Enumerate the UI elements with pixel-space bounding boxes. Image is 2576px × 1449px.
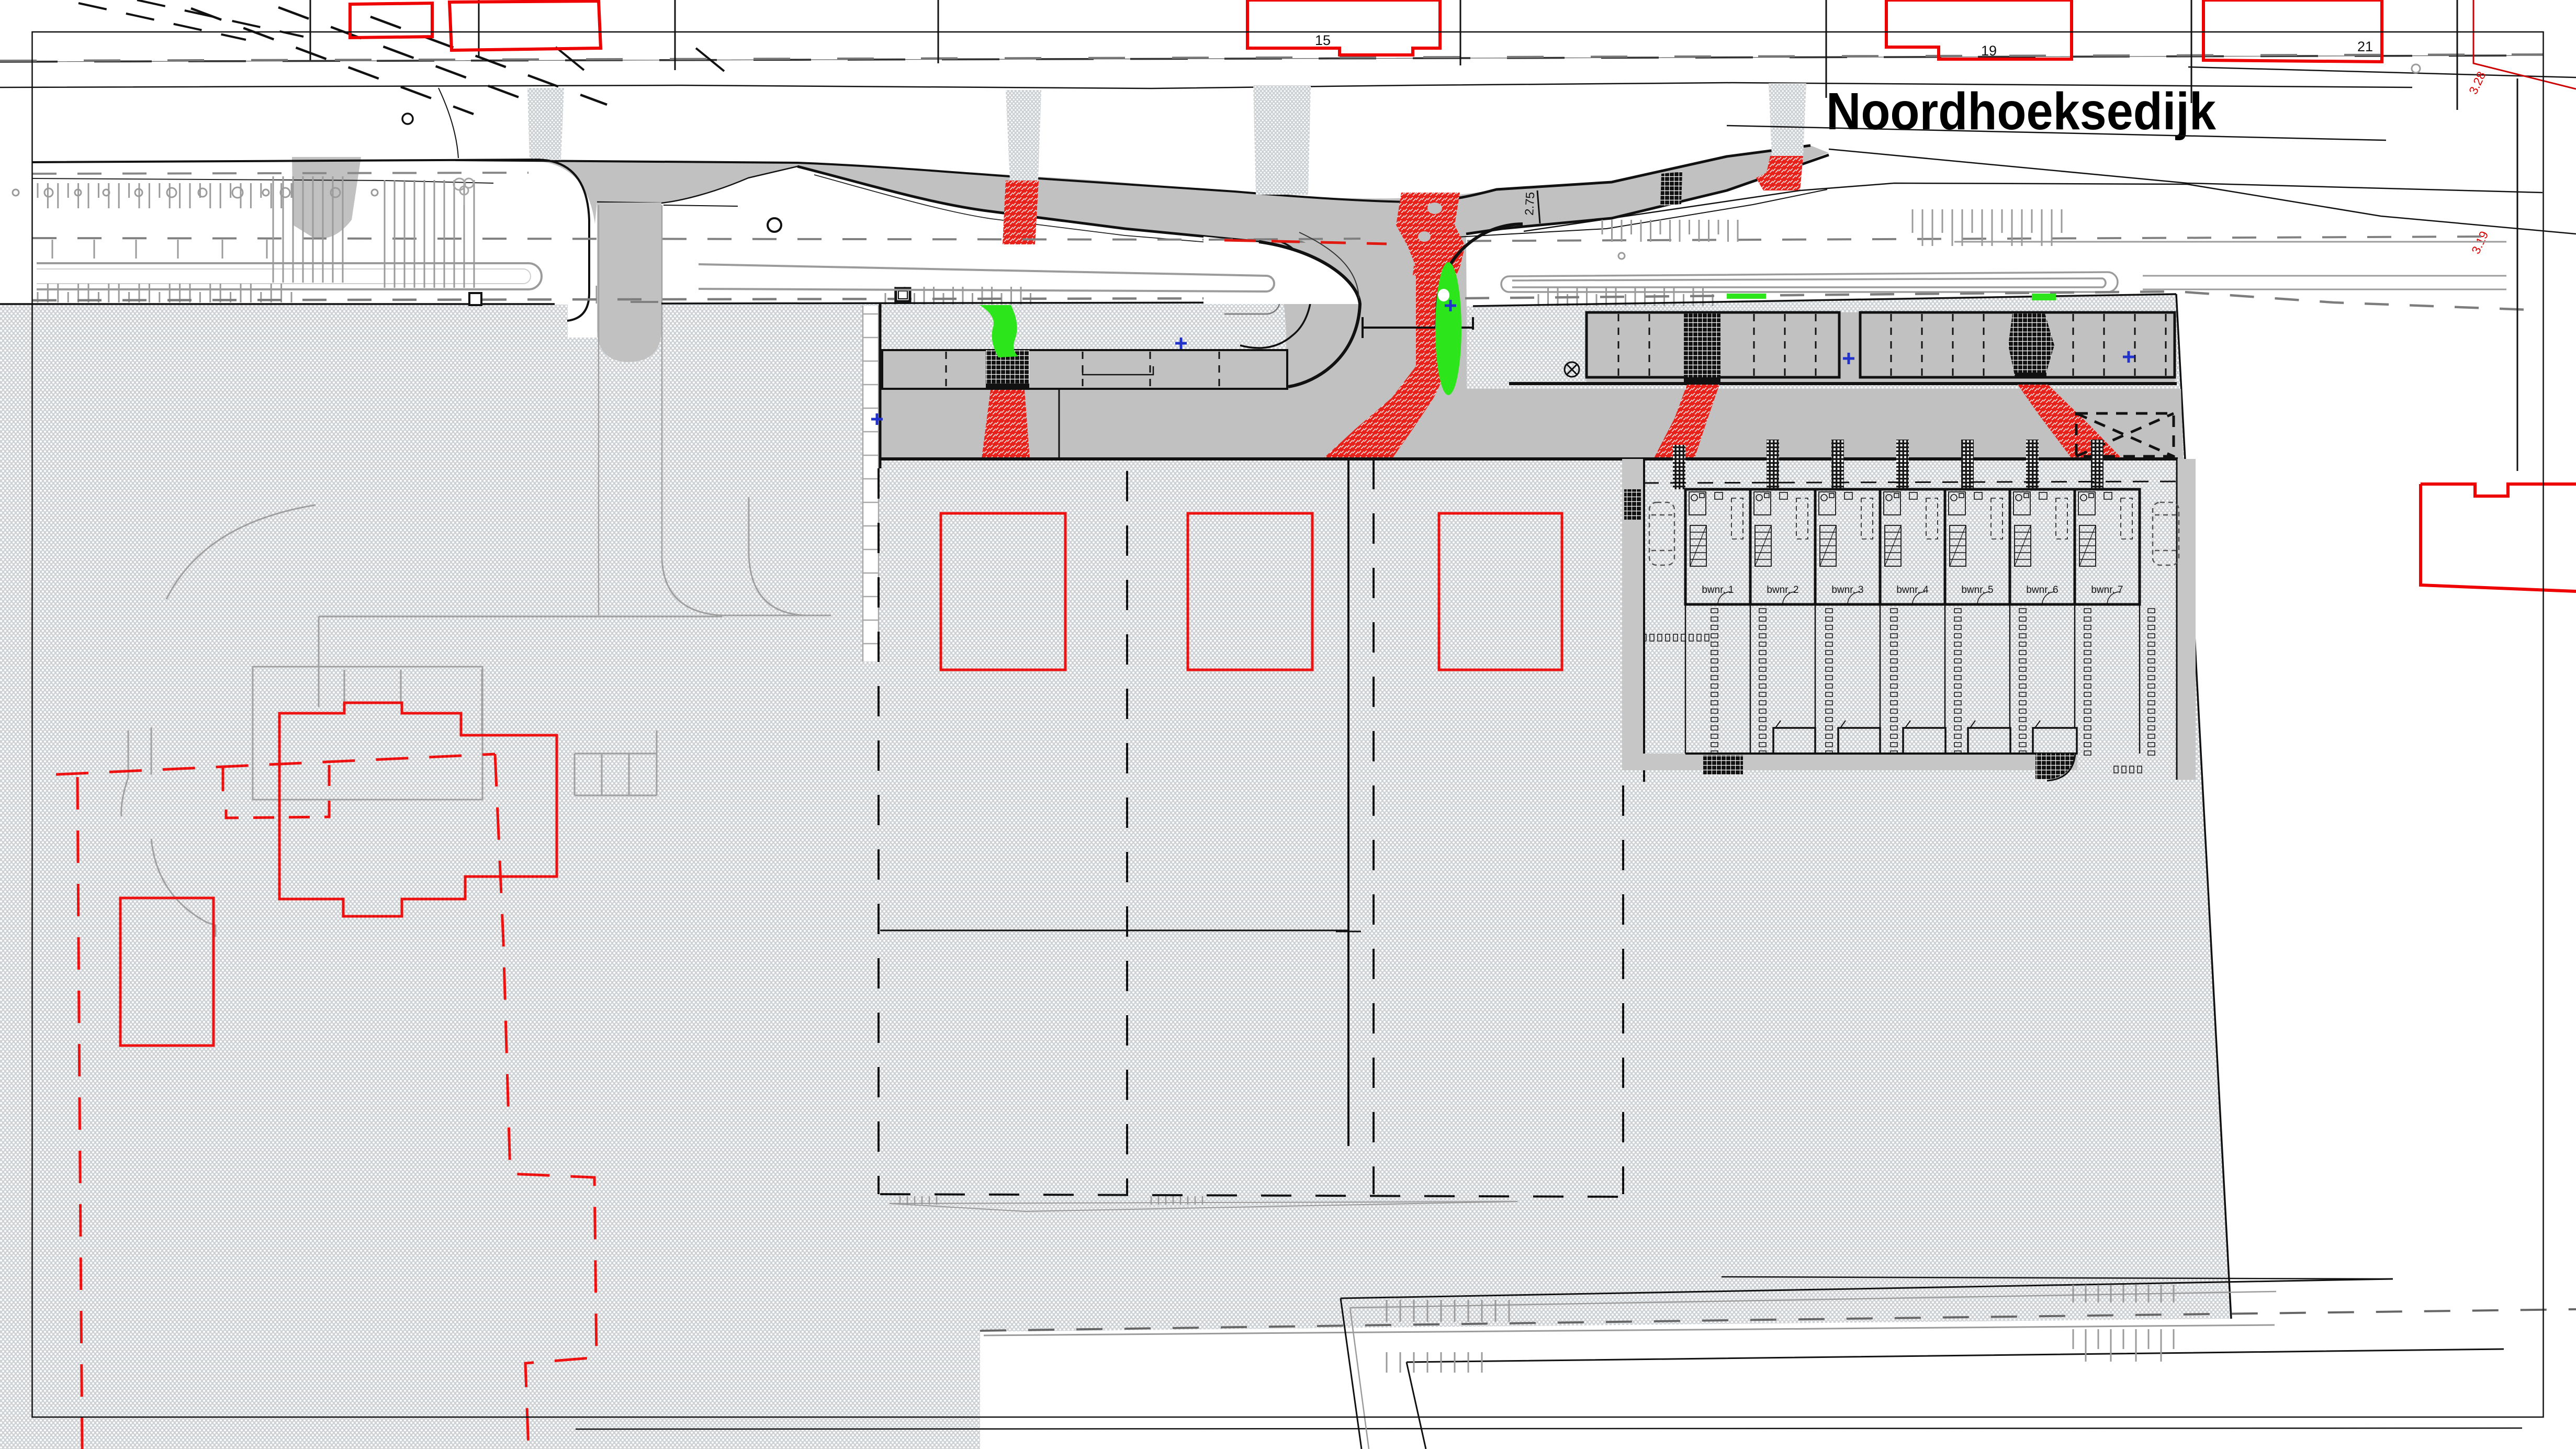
svg-text:bwnr. 5: bwnr. 5	[1961, 585, 1993, 596]
svg-text:bwnr. 1: bwnr. 1	[1702, 585, 1734, 596]
svg-text:bwnr. 6: bwnr. 6	[2026, 585, 2058, 596]
svg-text:bwnr. 7: bwnr. 7	[2091, 585, 2123, 596]
svg-text:19: 19	[1981, 43, 1997, 59]
svg-text:bwnr. 4: bwnr. 4	[1896, 585, 1929, 596]
svg-text:2.75: 2.75	[1522, 192, 1537, 216]
svg-text:21: 21	[2357, 39, 2373, 54]
svg-text:15: 15	[1315, 32, 1331, 48]
svg-text:bwnr. 3: bwnr. 3	[1831, 585, 1863, 596]
svg-text:bwnr. 2: bwnr. 2	[1767, 585, 1798, 596]
